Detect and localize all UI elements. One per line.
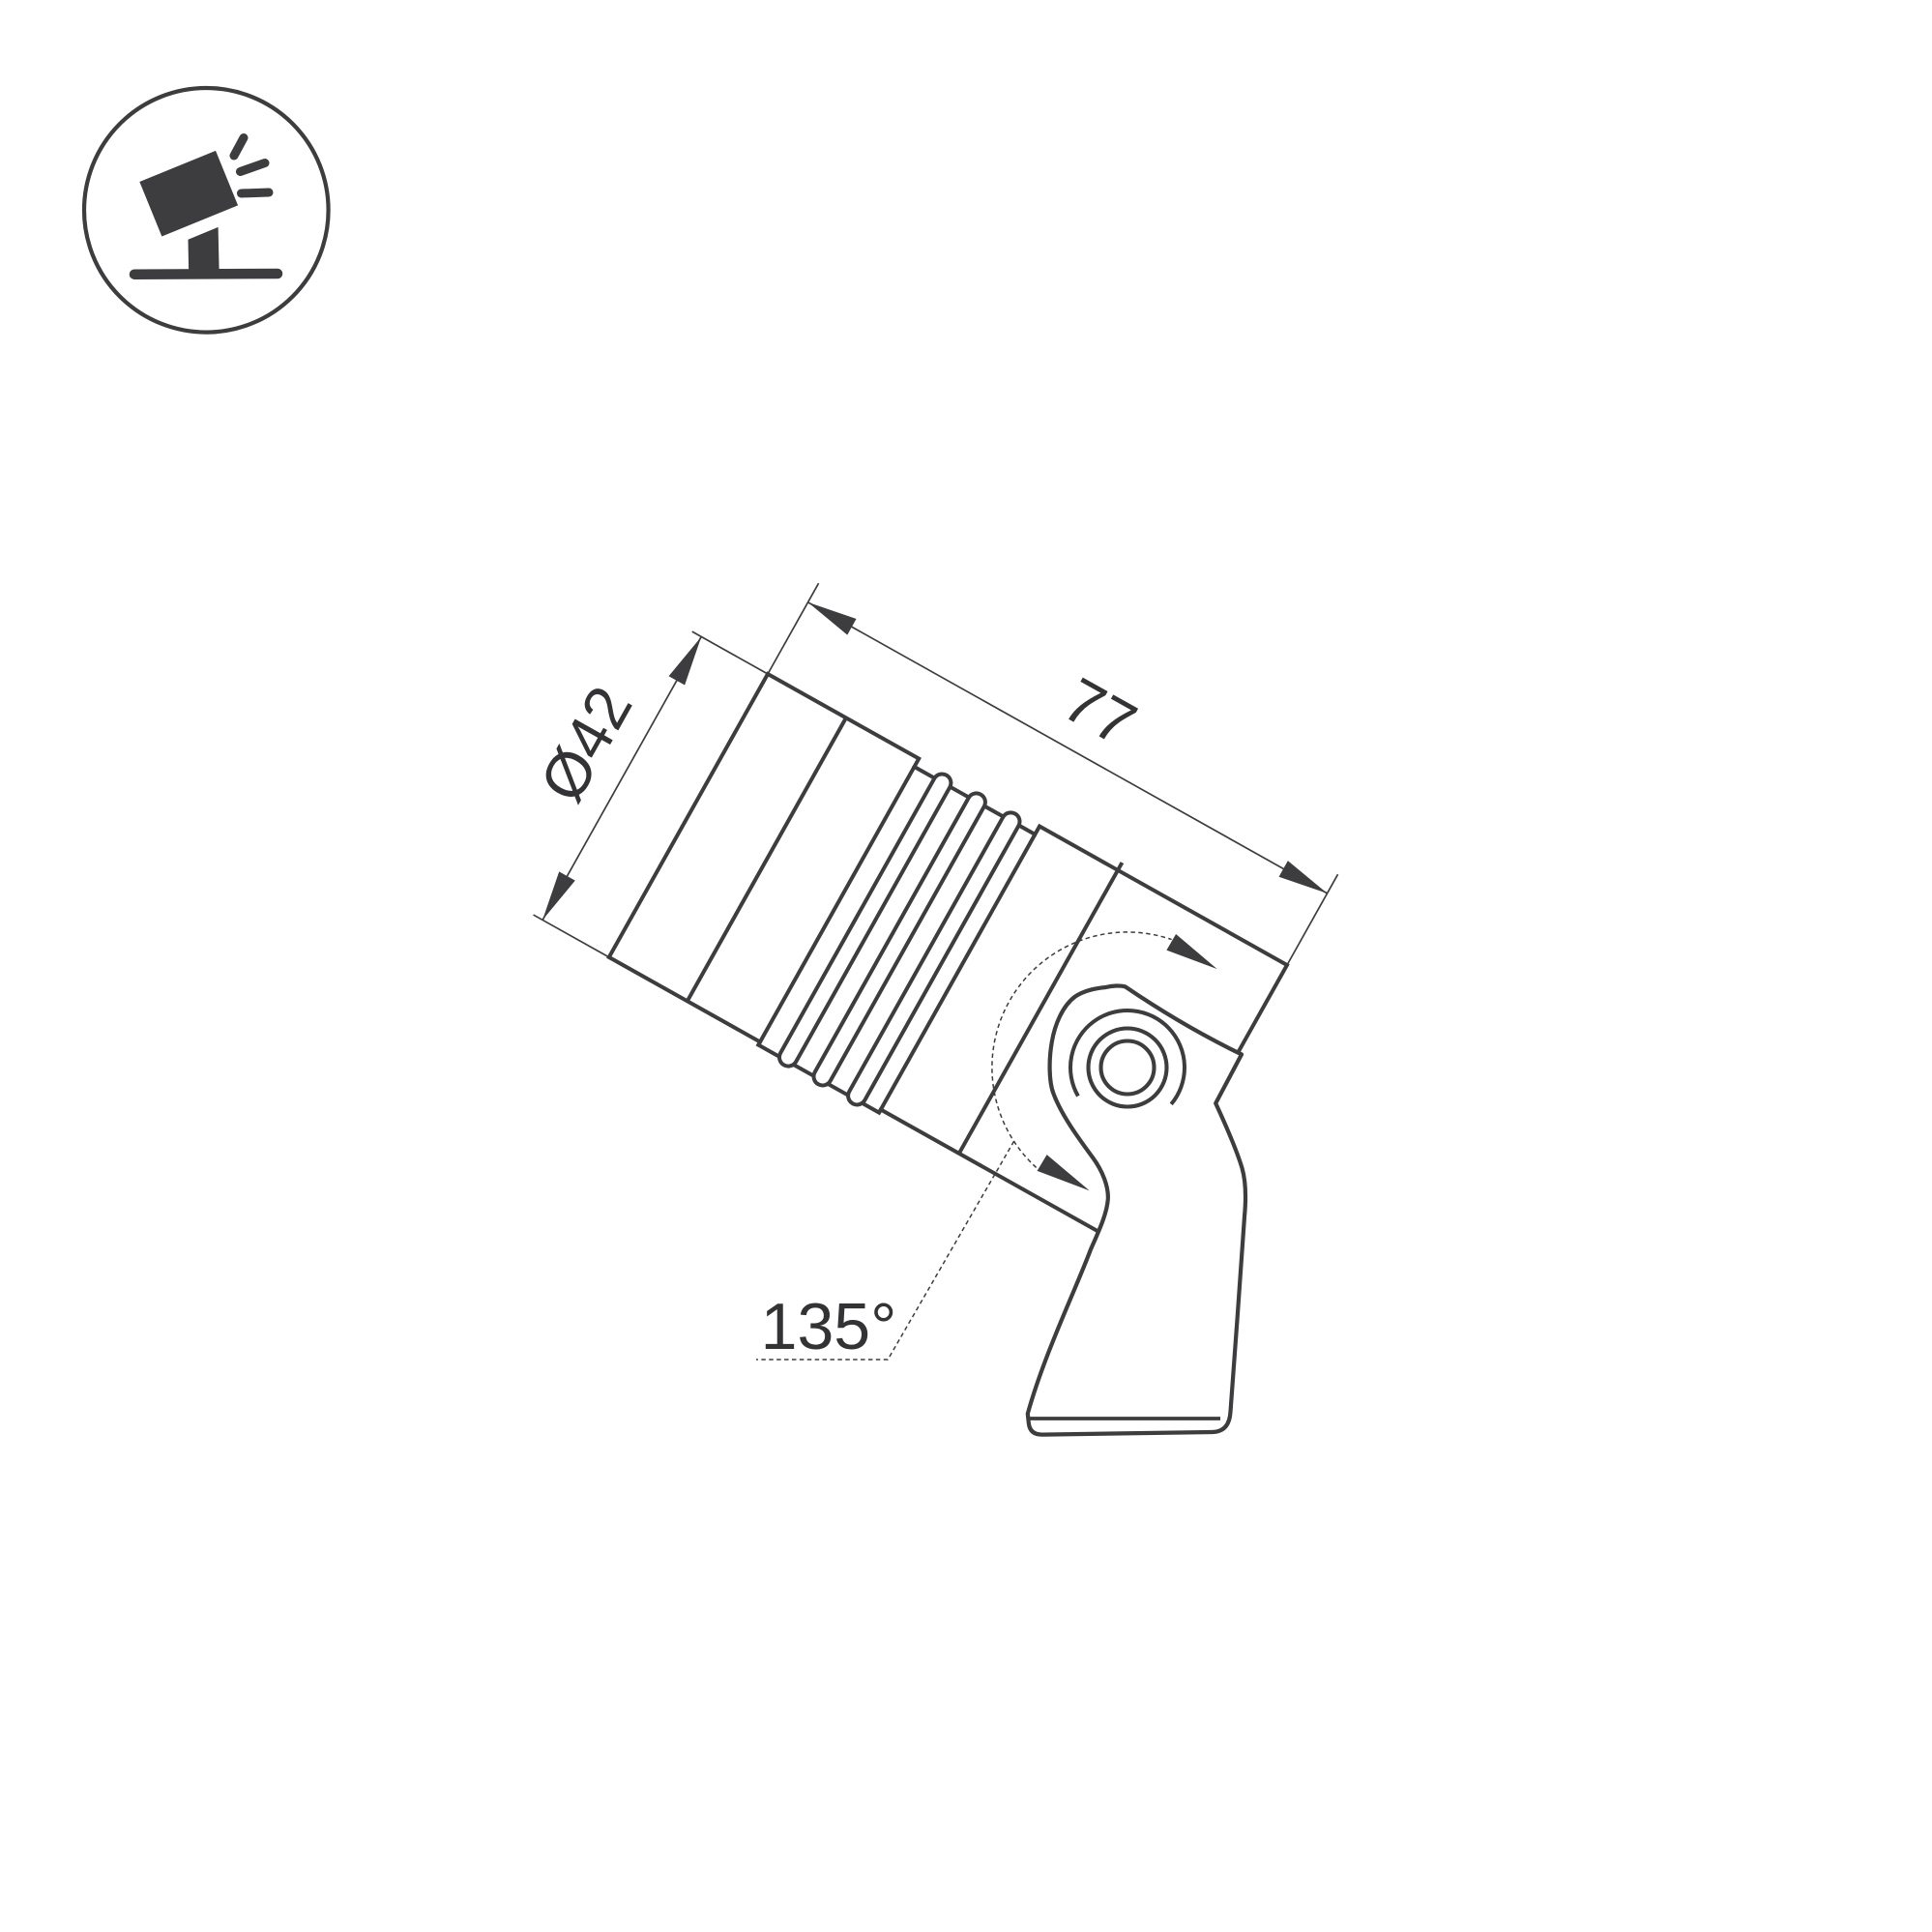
svg-text:135°: 135°: [761, 1290, 897, 1363]
